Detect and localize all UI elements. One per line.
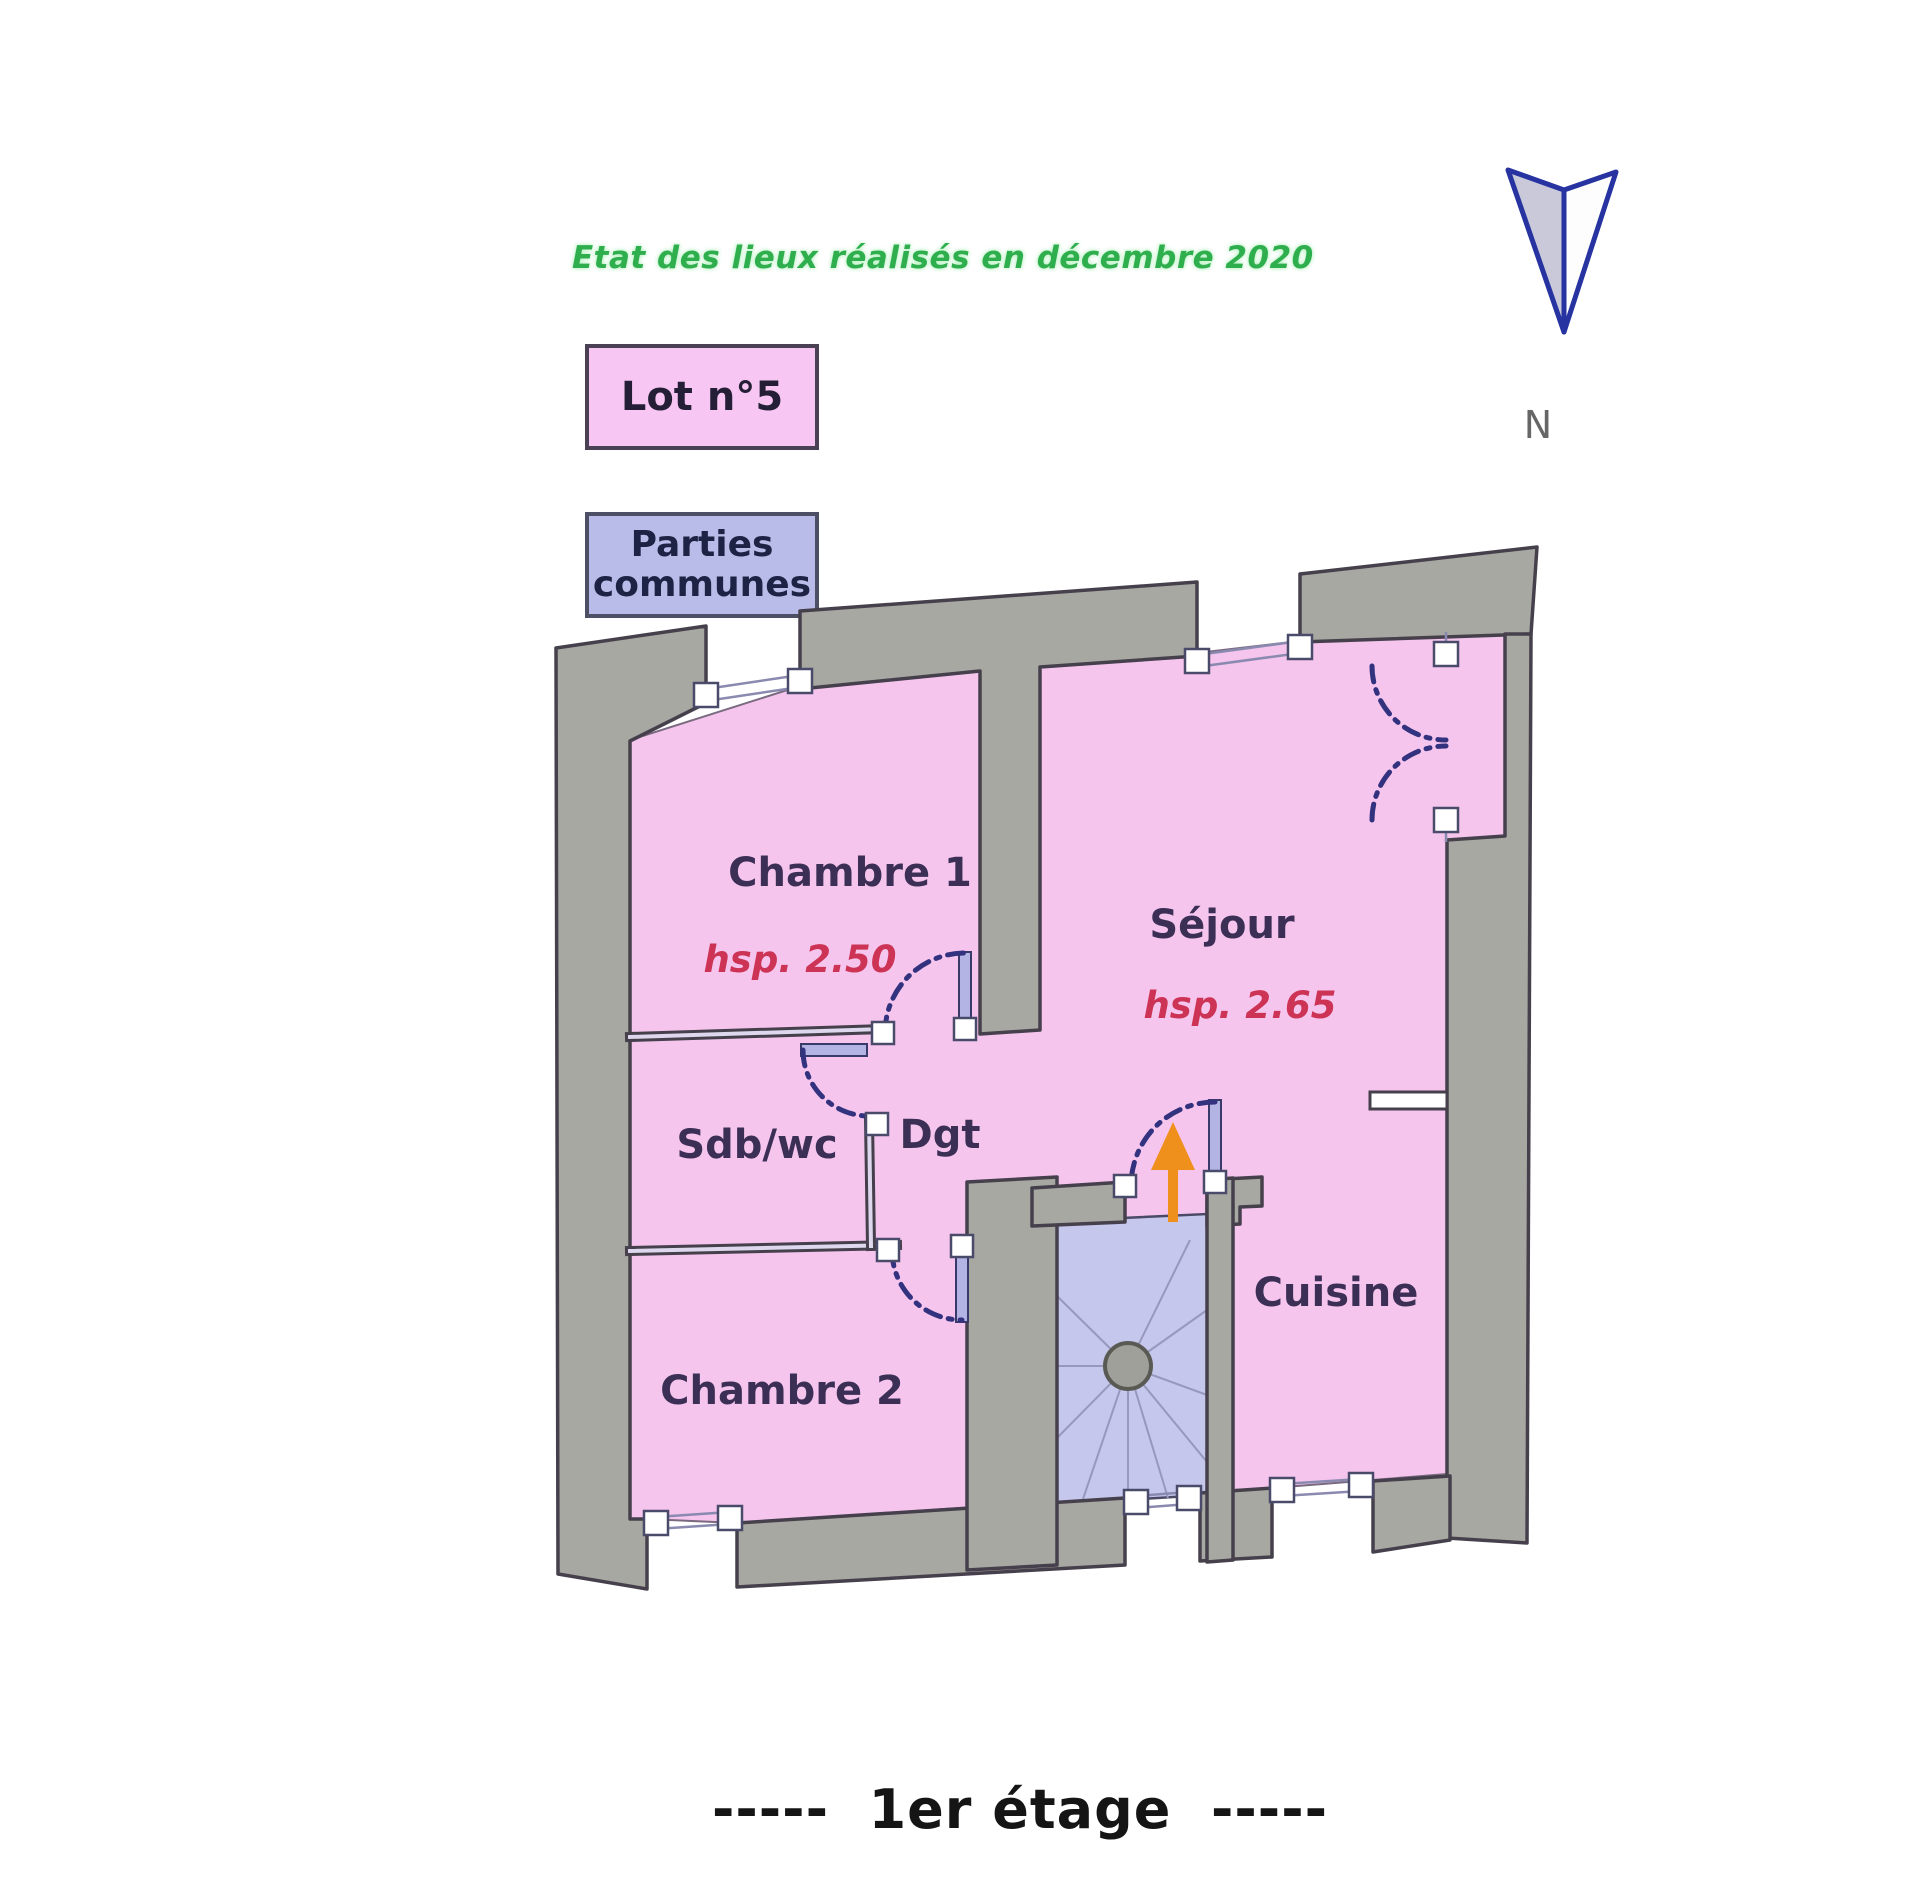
wall-stub-sejour-cuisine <box>1370 1092 1447 1109</box>
label-sdb-wc: Sdb/wc <box>676 1122 837 1168</box>
stair-newel-post <box>1105 1343 1151 1389</box>
label-dgt: Dgt <box>900 1112 981 1158</box>
label-chambre1: Chambre 1 <box>728 850 972 896</box>
wall-top-right <box>1300 547 1537 642</box>
north-label: N <box>1524 403 1552 447</box>
stairwell <box>1057 1214 1207 1504</box>
page: { "header": { "title": "Etat des lieux r… <box>0 0 1920 1889</box>
floor-plan-svg: Chambre 1 hsp. 2.50 Séjour hsp. 2.65 Sdb… <box>0 0 1920 1889</box>
label-sejour: Séjour <box>1149 902 1295 948</box>
label-cuisine: Cuisine <box>1254 1270 1419 1316</box>
label-sejour-hsp: hsp. 2.65 <box>1143 984 1336 1027</box>
wall-stairwell-top-left <box>1032 1182 1125 1226</box>
label-chambre2: Chambre 2 <box>660 1368 904 1414</box>
floor-caption: ----- 1er étage ----- <box>560 1778 1480 1841</box>
wall-bottom-3 <box>1373 1476 1450 1552</box>
label-chambre1-hsp: hsp. 2.50 <box>703 938 896 981</box>
wall-chambre2-stairwell <box>967 1177 1057 1570</box>
north-arrow-icon: N <box>1508 170 1616 447</box>
wall-stairwell-right <box>1207 1178 1233 1562</box>
